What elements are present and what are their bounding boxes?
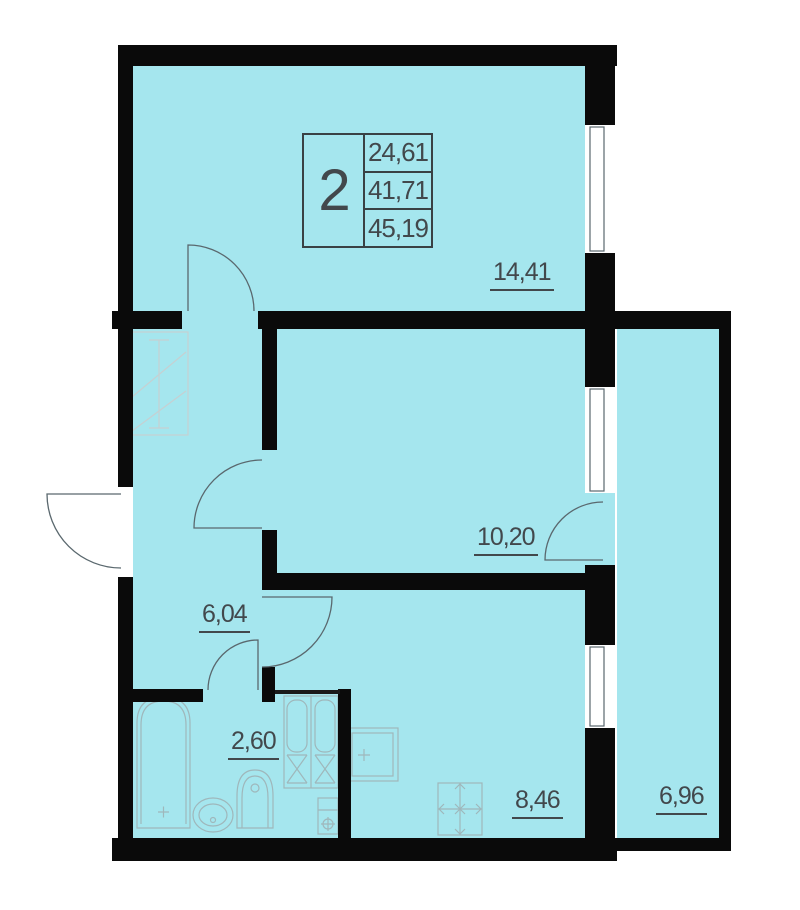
window-kitchen-loggia — [585, 645, 615, 728]
wall-hallway-bedroom-upper — [262, 329, 277, 450]
bedroom-door-gap — [262, 450, 277, 530]
wall-hallway-bedroom-lower — [262, 530, 277, 590]
wall-bathroom-right — [338, 689, 351, 838]
living-room-door-gap — [182, 311, 258, 329]
room-area-label-bedroom: 10,20 — [474, 525, 538, 556]
living-area-value: 24,61 — [365, 135, 431, 173]
loggia-floor — [617, 329, 719, 838]
bedroom-floor — [277, 329, 585, 573]
apartment-info-box: 2 24,61 41,71 45,19 — [302, 133, 433, 248]
floor-plan: 2 24,61 41,71 45,19 14,41 10,20 6,04 2,6… — [0, 0, 800, 910]
wall-bottom-main — [112, 838, 617, 861]
apartment-areas: 24,61 41,71 45,19 — [365, 135, 431, 246]
wall-right-of-kitchen-lower — [585, 728, 615, 838]
wall-mid-horizontal — [258, 311, 731, 329]
window-living-room — [585, 125, 615, 253]
apartment-area-value: 41,71 — [365, 173, 431, 211]
room-area-label-living-room: 14,41 — [490, 260, 554, 291]
wall-left-lower — [118, 577, 133, 838]
apartment-number: 2 — [304, 135, 365, 246]
wall-bathroom-top — [133, 689, 203, 702]
niche-front-edge — [275, 690, 340, 694]
wall-top — [118, 45, 617, 66]
hallway-floor — [133, 329, 262, 702]
window-bedroom-loggia — [585, 387, 615, 493]
wall-bedroom-kitchen — [277, 573, 585, 590]
wall-bottom-loggia — [615, 838, 731, 851]
wall-right-of-living-lower — [585, 253, 615, 387]
room-area-label-bathroom: 2,60 — [228, 729, 279, 760]
door-entrance — [47, 494, 121, 568]
wall-hallway-kitchen-stub — [262, 667, 275, 702]
total-area-value: 45,19 — [365, 210, 431, 246]
room-area-label-kitchen: 8,46 — [512, 788, 563, 819]
wall-right-of-living-upper — [585, 45, 615, 125]
wall-left-upper — [118, 45, 133, 487]
room-area-label-loggia: 6,96 — [656, 784, 707, 815]
wall-right-of-kitchen-upper — [585, 565, 615, 645]
room-area-label-hallway: 6,04 — [199, 602, 250, 633]
wall-mid-left-stub — [112, 311, 182, 329]
wall-right-outer — [719, 311, 731, 851]
